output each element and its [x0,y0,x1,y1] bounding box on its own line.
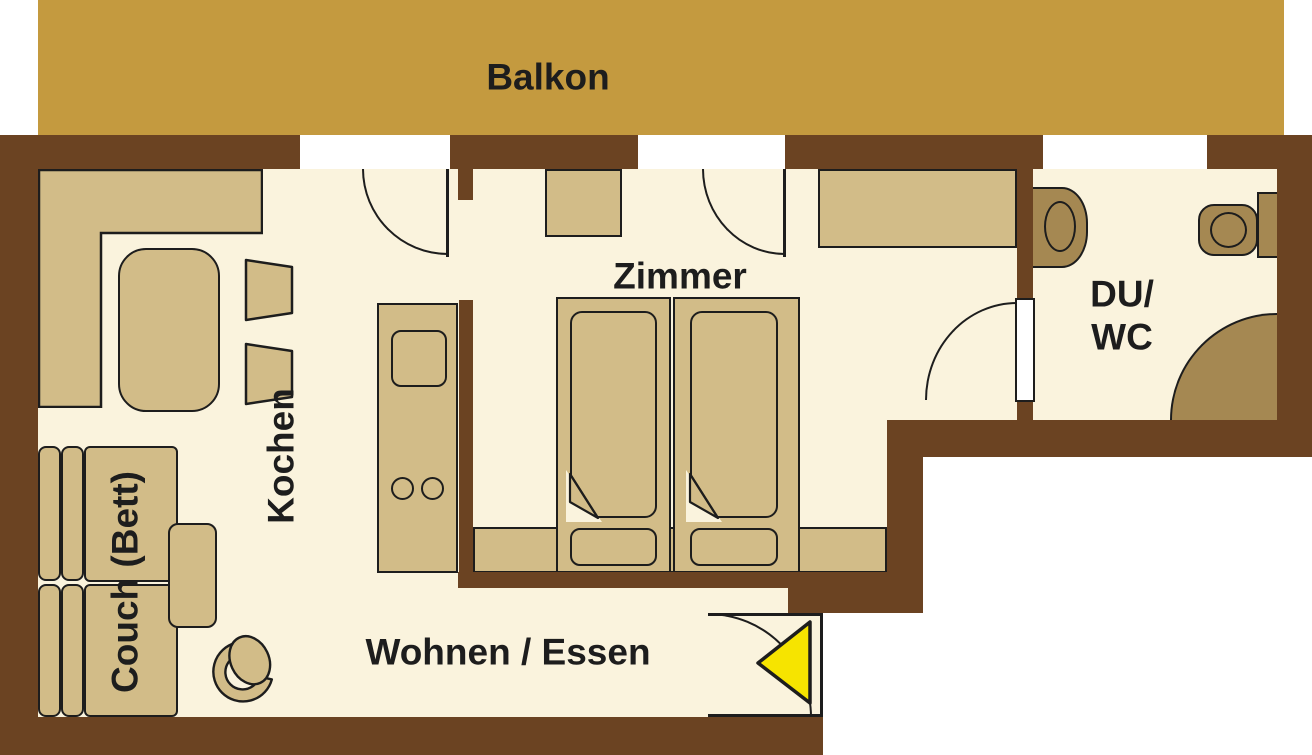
side-table [168,523,217,628]
floor-plan-canvas: Balkon Zimmer Kochen Couch (Bett) Wohnen… [0,0,1312,755]
wall-left [0,135,38,755]
balcony-label: Balkon [486,57,609,100]
wall-right [1277,135,1312,457]
wall-kitchen [459,300,473,572]
wall-bedroom-bottom-thin [458,572,788,588]
wall-bottom [0,717,823,755]
bed-1-duvet-fold [566,468,606,522]
couch-back-rail-1 [38,446,61,581]
couch-label: Couch (Bett) [105,471,148,693]
wall-bath-left-upper [1017,169,1033,298]
couch-back-rail-4 [61,584,84,717]
chair-1 [246,260,292,320]
toilet-tank [1257,192,1279,258]
bed-2-pillow [690,528,778,566]
bathroom-label-line1: DU/ [1090,273,1154,314]
window-bedroom-balcony-door [638,135,785,169]
armchair [206,618,282,714]
balcony-area [38,0,1284,135]
bed-2-duvet-fold [686,468,726,522]
bathroom-door-leaf [1015,298,1035,402]
stove-burner-1 [391,477,414,500]
bedroom-label: Zimmer [613,256,747,299]
bed-1-pillow [570,528,657,566]
entrance-arrow-icon [750,615,820,710]
couch-back-rail-2 [61,446,84,581]
bedroom-wardrobe [818,169,1017,248]
kitchen-label: Kochen [261,388,304,524]
living-dining-label: Wohnen / Essen [365,632,650,675]
bath-sink-basin [1044,201,1076,252]
dining-table [118,248,220,412]
bedroom-cabinet-small [545,169,622,237]
wall-bath-bottom [887,420,1312,457]
bathroom-label-line2: WC [1091,316,1153,357]
stove-burner-2 [421,477,444,500]
wall-kitchen-stub [458,169,473,200]
window-bathroom [1043,135,1207,169]
kitchen-sink [391,330,447,387]
dining-chairs [240,252,298,408]
bathroom-label: DU/ WC [1090,273,1154,358]
wall-bath-left-lower [1017,402,1033,420]
couch-back-rail-3 [38,584,61,717]
toilet-seat [1210,212,1247,248]
window-living-balcony-door [300,135,450,169]
